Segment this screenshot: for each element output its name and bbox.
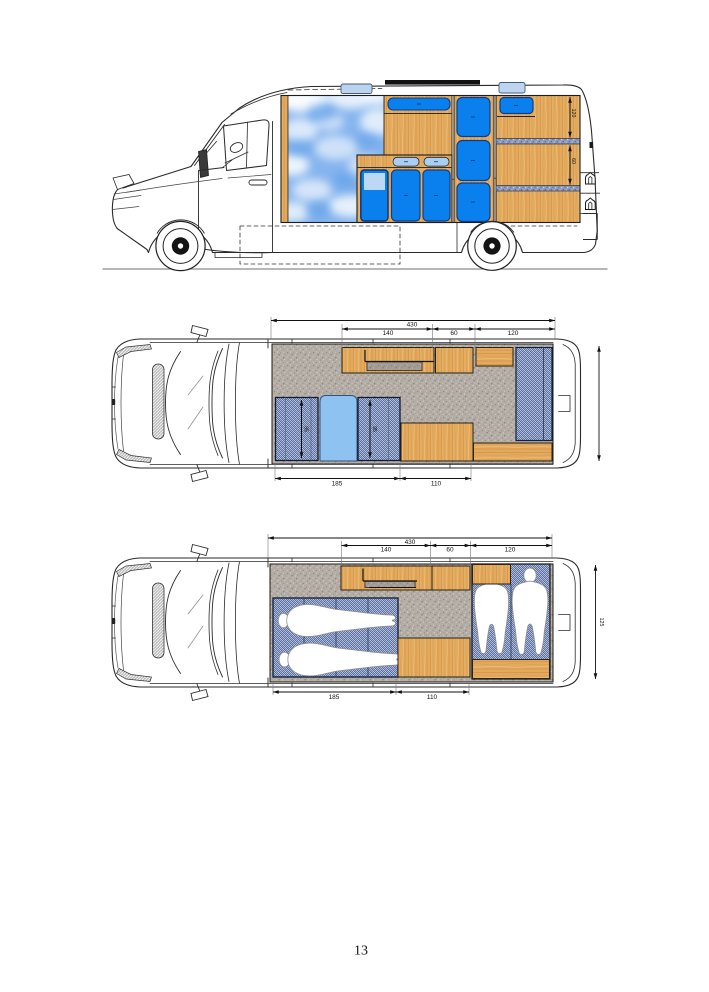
svg-text:95: 95 — [371, 426, 377, 432]
svg-text:430: 430 — [405, 539, 416, 546]
svg-text:110: 110 — [431, 481, 442, 488]
svg-text:60: 60 — [570, 158, 576, 164]
svg-text:60: 60 — [450, 330, 458, 337]
svg-text:110: 110 — [427, 694, 438, 701]
svg-text:60: 60 — [446, 547, 454, 554]
svg-text:125: 125 — [598, 618, 604, 627]
svg-text:13: 13 — [354, 944, 368, 959]
svg-text:120: 120 — [508, 330, 519, 337]
svg-text:185: 185 — [332, 481, 343, 488]
svg-text:120: 120 — [570, 109, 576, 118]
svg-text:140: 140 — [383, 330, 394, 337]
svg-text:430: 430 — [407, 322, 418, 329]
svg-text:140: 140 — [381, 547, 392, 554]
svg-text:95: 95 — [303, 426, 309, 432]
svg-text:185: 185 — [329, 694, 340, 701]
svg-text:120: 120 — [505, 547, 516, 554]
